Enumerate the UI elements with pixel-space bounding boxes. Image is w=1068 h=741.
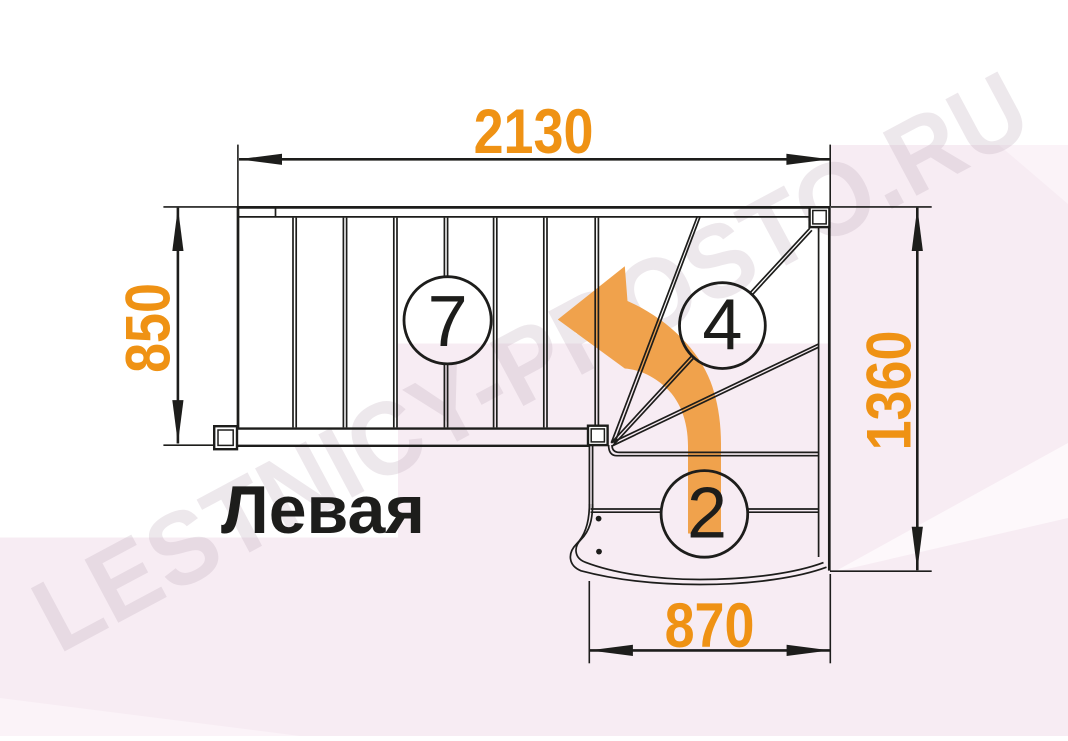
svg-text:2: 2 bbox=[687, 473, 727, 553]
svg-text:Левая: Левая bbox=[221, 472, 425, 548]
svg-text:1360: 1360 bbox=[855, 331, 925, 451]
svg-text:850: 850 bbox=[114, 283, 184, 373]
svg-text:2130: 2130 bbox=[474, 97, 594, 167]
svg-text:870: 870 bbox=[665, 591, 755, 661]
svg-text:7: 7 bbox=[428, 282, 468, 362]
svg-text:4: 4 bbox=[702, 286, 742, 366]
